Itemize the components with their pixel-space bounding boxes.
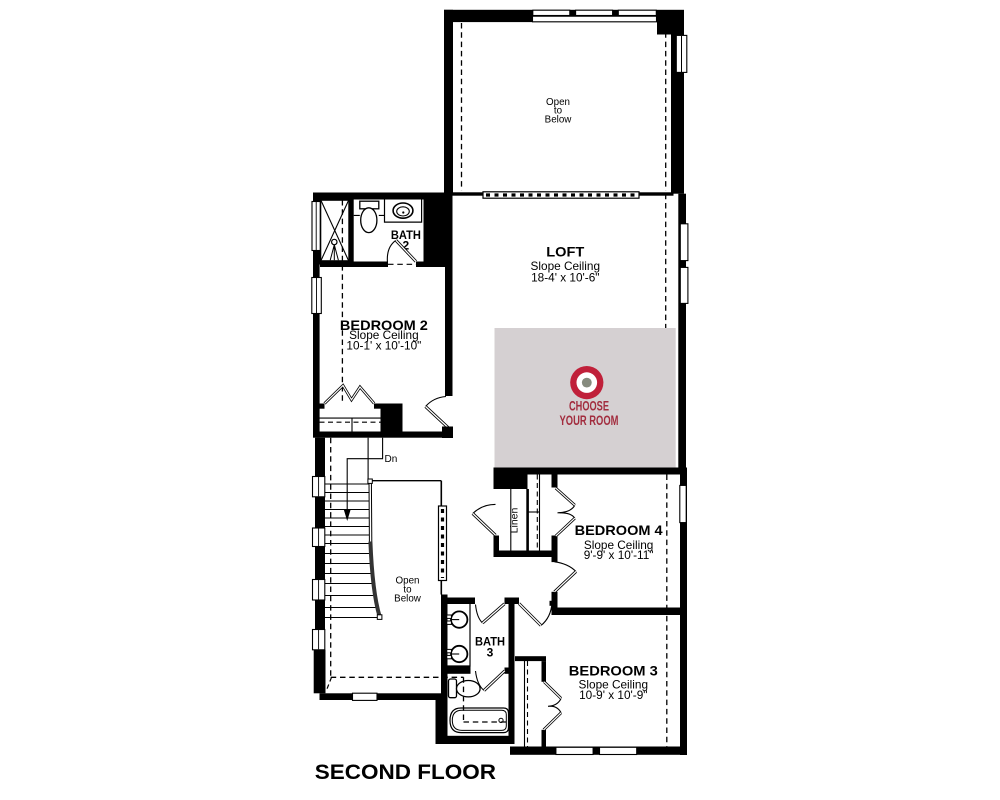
svg-text:Dn: Dn — [385, 454, 398, 465]
svg-text:Below: Below — [545, 115, 573, 126]
svg-text:10-9' x 10'-9": 10-9' x 10'-9" — [579, 688, 647, 702]
svg-text:9'-9' x 10'-11": 9'-9' x 10'-11" — [584, 548, 654, 562]
svg-text:3: 3 — [487, 646, 494, 660]
svg-text:BEDROOM 3: BEDROOM 3 — [569, 663, 658, 678]
svg-text:10-1' x 10'-10": 10-1' x 10'-10" — [346, 339, 421, 353]
svg-text:Linen: Linen — [509, 508, 521, 534]
svg-text:18-4' x 10'-6": 18-4' x 10'-6" — [531, 271, 599, 285]
svg-text:Below: Below — [394, 594, 422, 605]
svg-text:SECOND FLOOR: SECOND FLOOR — [315, 761, 496, 784]
svg-text:YOUR ROOM: YOUR ROOM — [560, 413, 619, 429]
svg-text:CHOOSE: CHOOSE — [569, 398, 609, 414]
svg-text:BEDROOM 4: BEDROOM 4 — [575, 523, 663, 538]
